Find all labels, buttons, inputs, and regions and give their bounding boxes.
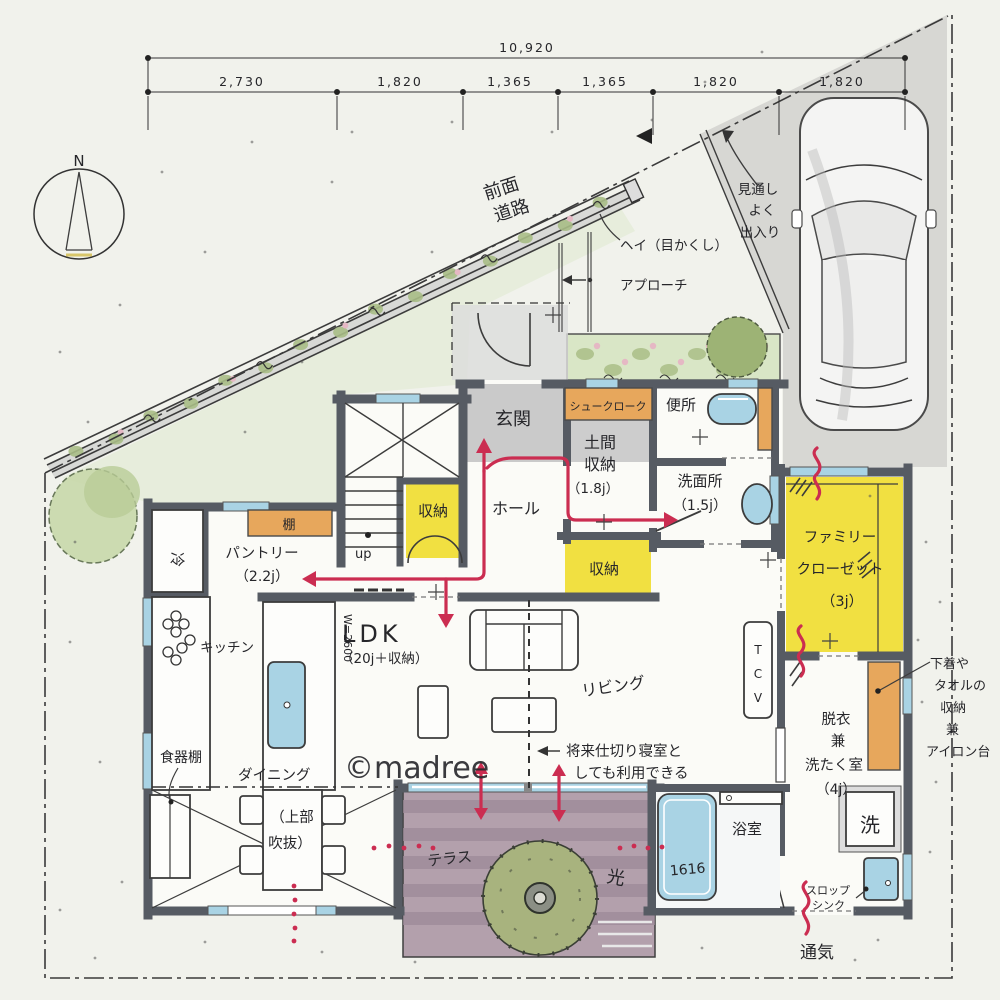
dim-seg-2: 1,820 xyxy=(377,74,423,89)
label-void-2: 吹抜） xyxy=(268,835,312,852)
laundry-sliding-door xyxy=(776,728,785,782)
north-compass-icon: N xyxy=(34,152,124,259)
label-closet-note-1: 下着や xyxy=(930,656,969,672)
tree-icon xyxy=(483,841,597,955)
side-table xyxy=(418,686,448,738)
label-tv-3: V xyxy=(754,691,763,705)
label-doma-1: 土間 xyxy=(584,433,616,452)
label-toilet: 便所 xyxy=(666,396,696,414)
washbasin-icon xyxy=(742,484,772,524)
slop-sink-icon xyxy=(864,858,898,900)
label-dining: ダイニング xyxy=(238,767,311,784)
car-illustration xyxy=(792,98,936,430)
label-closet-note-5: アイロン台 xyxy=(926,745,990,760)
label-pantry: パントリー xyxy=(225,545,298,562)
dim-seg-6: 1,820 xyxy=(819,74,865,89)
label-tv-1: T xyxy=(753,643,762,657)
label-doma-size: （1.8j） xyxy=(567,481,619,497)
label-future-2: しても利用できる xyxy=(574,765,689,782)
dim-seg-5: 1,820 xyxy=(693,74,739,89)
label-shelf: 棚 xyxy=(282,518,295,533)
dim-total: 10,920 xyxy=(499,40,555,55)
label-vent: 通気 xyxy=(800,943,834,963)
boundary-marker-icon xyxy=(636,128,652,144)
label-laundry-size: （4j） xyxy=(816,782,857,798)
label-family-closet-1: ファミリー xyxy=(804,530,877,546)
dim-seg-3: 1,365 xyxy=(487,74,533,89)
label-stairs-up: up xyxy=(355,547,372,562)
shrub-icon xyxy=(707,317,767,377)
label-closet-note-3: 収納 xyxy=(940,701,966,716)
label-future-1: 将来仕切り寝室と xyxy=(566,742,682,760)
label-island-width: W=2600 xyxy=(341,614,354,662)
label-kitchen: キッチン xyxy=(200,640,254,656)
label-approach: アプローチ xyxy=(620,278,688,294)
label-closet-note-2: タオルの xyxy=(934,679,986,694)
label-visibility-1: 見通し xyxy=(738,182,779,198)
label-light: 光 xyxy=(605,866,626,890)
floor-plan-drawing: 10,920 2,730 1,820 1,365 1,365 1,820 1,8… xyxy=(0,0,1000,1000)
label-bathroom: 浴室 xyxy=(732,820,762,838)
label-family-closet-size: （3j） xyxy=(821,593,863,610)
label-visibility-2: よく xyxy=(749,203,776,219)
label-hall: ホール xyxy=(492,499,540,518)
label-fridge: 冷 xyxy=(168,552,186,567)
label-washer: 洗 xyxy=(860,813,880,837)
bathtub-icon xyxy=(658,794,716,900)
label-shoe-cloak: シュークローク xyxy=(570,400,647,413)
coffee-table xyxy=(492,698,556,732)
watermark: ©madree xyxy=(344,751,489,786)
toilet-cabinet xyxy=(758,388,772,450)
porch-floor xyxy=(452,305,568,380)
label-doma-2: 収納 xyxy=(584,455,616,474)
label-closet-note-4: 兼 xyxy=(946,723,959,738)
label-genkan: 玄関 xyxy=(495,409,531,430)
label-hall-storage: 収納 xyxy=(589,560,619,578)
label-understair-storage: 収納 xyxy=(418,502,448,520)
label-laundry-3: 洗たく室 xyxy=(805,757,863,774)
floor-plan-canvas: 10,920 2,730 1,820 1,365 1,365 1,820 1,8… xyxy=(0,0,1000,1000)
label-bathtub-size: 1616 xyxy=(669,860,706,879)
label-laundry-1: 脱衣 xyxy=(822,711,851,728)
label-tv-2: C xyxy=(754,667,762,681)
garden-bed xyxy=(567,317,780,381)
label-dish-cabinet: 食器棚 xyxy=(160,749,202,766)
dim-seg-4: 1,365 xyxy=(582,74,628,89)
compass-north-label: N xyxy=(73,152,84,170)
fridge-space xyxy=(152,510,203,592)
label-slop-2: シンク xyxy=(812,899,845,912)
dim-seg-1: 2,730 xyxy=(219,74,265,89)
label-fence: ヘイ（目かくし） xyxy=(620,238,728,254)
laundry-counter xyxy=(868,662,900,770)
label-void-1: （上部 xyxy=(270,809,314,826)
label-washroom-size: （1.5j） xyxy=(673,498,727,514)
label-pantry-size: （2.2j） xyxy=(235,569,289,585)
label-laundry-2: 兼 xyxy=(831,733,846,750)
label-washroom: 洗面所 xyxy=(677,472,722,490)
label-family-closet-2: クローゼット xyxy=(797,561,884,578)
label-slop-1: スロップ xyxy=(806,884,850,897)
label-visibility-3: 出入り xyxy=(740,225,781,241)
